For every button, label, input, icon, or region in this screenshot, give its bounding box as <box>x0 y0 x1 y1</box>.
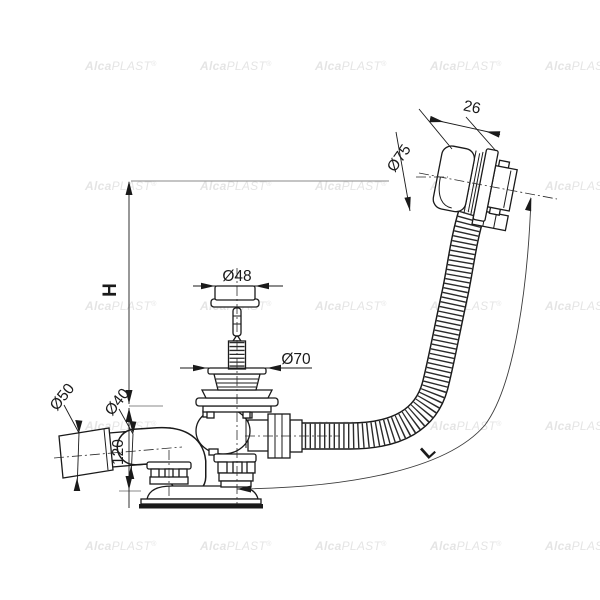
dimension-48: Ø48 <box>193 268 283 289</box>
flexible-hose <box>300 212 472 436</box>
technical-drawing-page: AlcaPLAST® <box>0 0 600 600</box>
dimension-label-26: 26 <box>462 97 482 117</box>
dimension-label-50: Ø50 <box>47 380 79 414</box>
center-castellated-nut <box>214 454 256 487</box>
dimension-75: Ø75 <box>384 132 415 211</box>
strainer <box>196 368 278 418</box>
dimension-label-75: Ø75 <box>384 142 415 176</box>
dimension-label-120: 120 <box>110 439 127 465</box>
dimension-label-l: L <box>417 440 440 464</box>
dimension-26: 26 <box>419 97 500 151</box>
dimension-label-h: H <box>100 283 121 297</box>
bath-drain-technical-drawing: AlcaPLAST® <box>0 0 600 600</box>
dimension-h: H <box>100 181 133 404</box>
dimension-label-70: Ø70 <box>281 351 311 368</box>
dimension-label-48: Ø48 <box>222 268 251 285</box>
